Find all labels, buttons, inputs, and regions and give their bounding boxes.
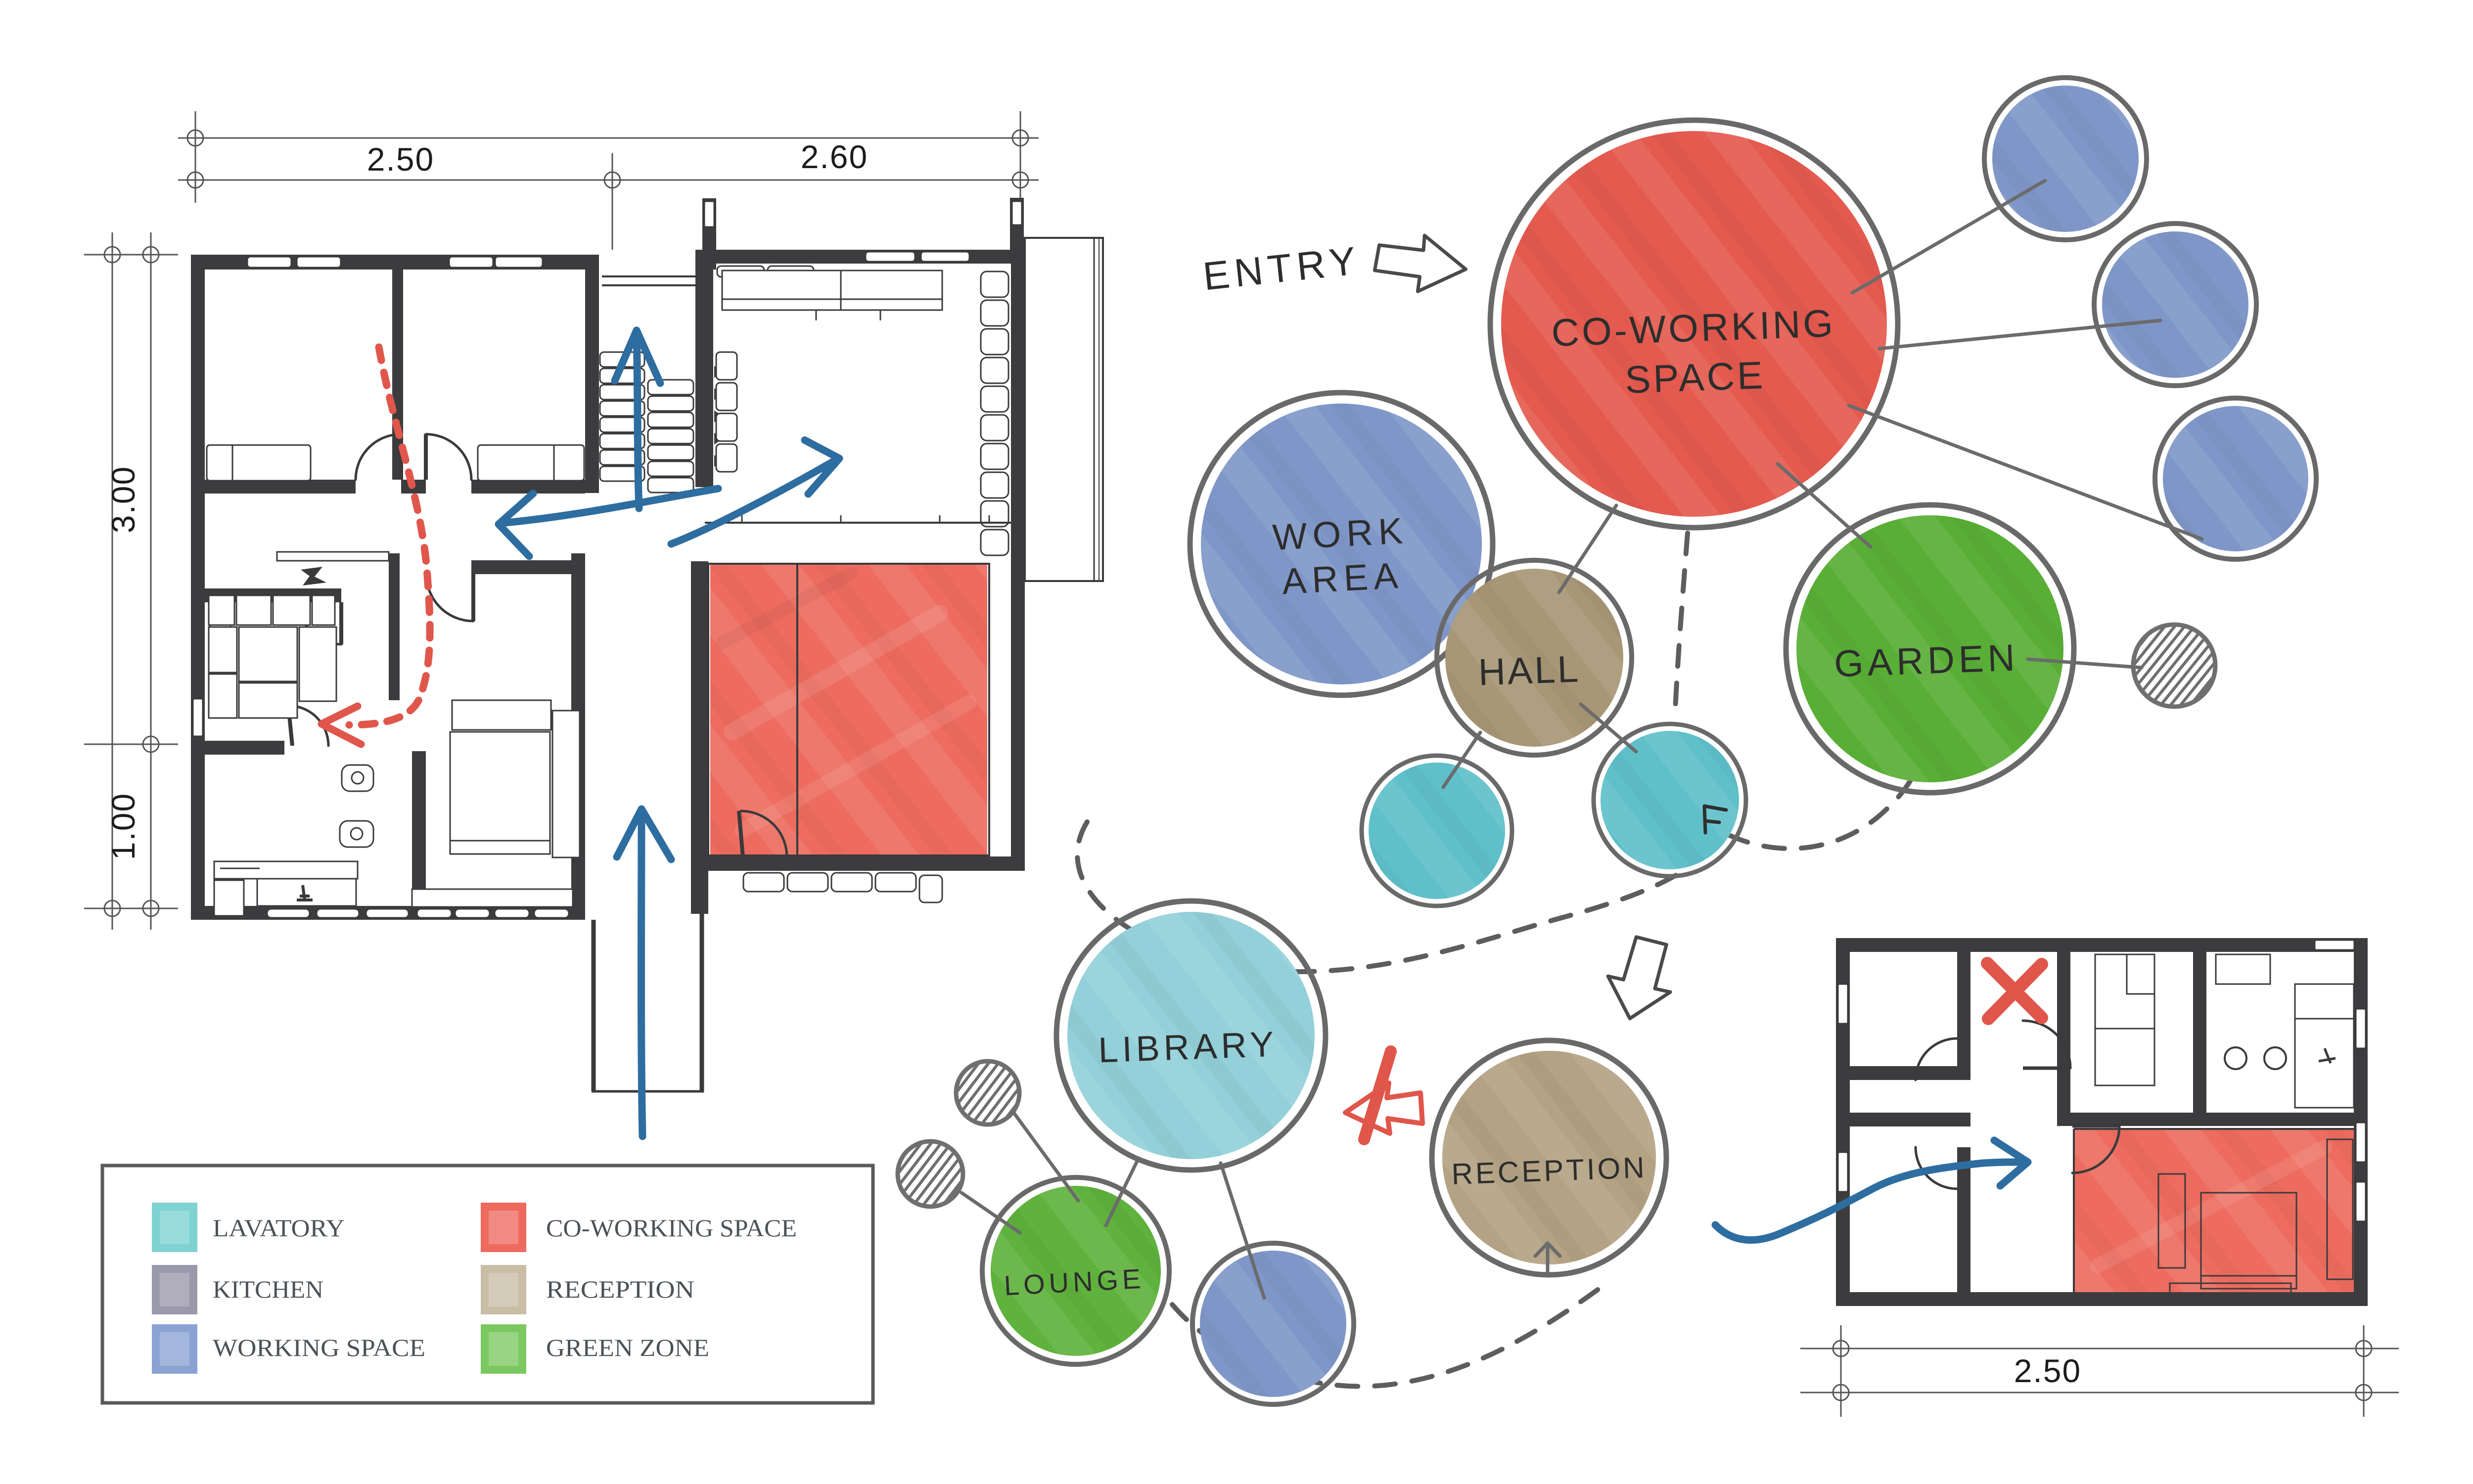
svg-text:RECEPTION: RECEPTION xyxy=(546,1275,694,1303)
svg-text:3.00: 3.00 xyxy=(105,466,141,533)
svg-text:AREA: AREA xyxy=(1281,555,1405,602)
svg-text:LIBRARY: LIBRARY xyxy=(1098,1025,1278,1071)
svg-text:GREEN ZONE: GREEN ZONE xyxy=(546,1334,709,1361)
svg-text:SPACE: SPACE xyxy=(1624,353,1766,402)
svg-text:2.60: 2.60 xyxy=(801,138,868,175)
svg-text:1.00: 1.00 xyxy=(105,793,141,860)
svg-text:GARDEN: GARDEN xyxy=(1833,637,2019,685)
svg-text:LAVATORY: LAVATORY xyxy=(213,1214,345,1242)
svg-text:KITCHEN: KITCHEN xyxy=(213,1275,323,1303)
svg-text:2.50: 2.50 xyxy=(367,141,434,178)
svg-text:CO-WORKING SPACE: CO-WORKING SPACE xyxy=(546,1214,797,1242)
svg-text:WORK: WORK xyxy=(1272,510,1409,558)
svg-text:2.50: 2.50 xyxy=(2014,1352,2081,1389)
svg-text:RECEPTION: RECEPTION xyxy=(1451,1151,1648,1191)
svg-text:WORKING SPACE: WORKING SPACE xyxy=(213,1334,425,1361)
svg-text:HALL: HALL xyxy=(1477,648,1581,693)
